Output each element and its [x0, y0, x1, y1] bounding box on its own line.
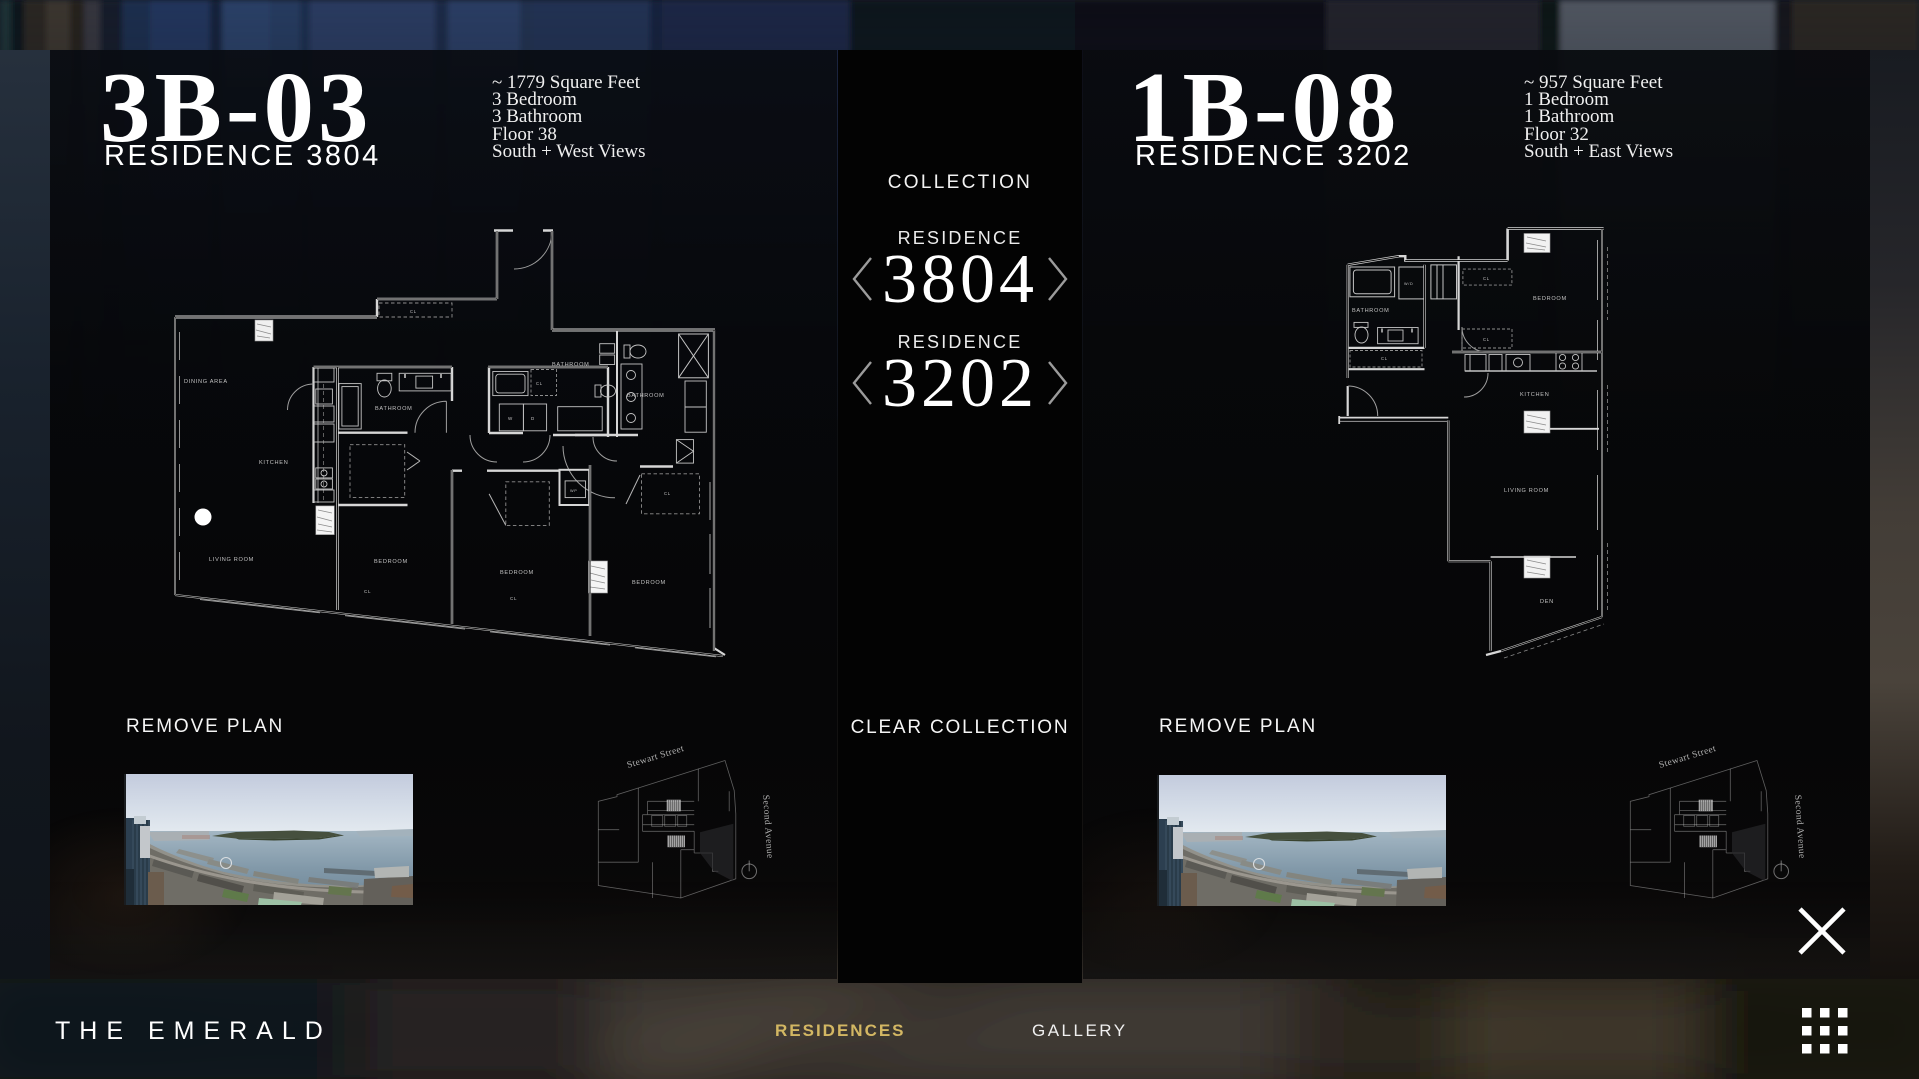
- svg-text:W: W: [508, 416, 513, 421]
- svg-text:CL: CL: [1483, 276, 1490, 281]
- svg-text:D: D: [531, 416, 535, 421]
- svg-text:W/D: W/D: [1404, 282, 1413, 286]
- svg-text:DEN: DEN: [1540, 599, 1554, 605]
- svg-text:BATHROOM: BATHROOM: [552, 362, 590, 368]
- svg-text:BATHROOM: BATHROOM: [1352, 308, 1390, 314]
- svg-text:LIVING ROOM: LIVING ROOM: [1504, 488, 1549, 494]
- svg-text:BATHROOM: BATHROOM: [375, 406, 413, 412]
- svg-text:CL: CL: [1381, 356, 1388, 361]
- svg-text:CL: CL: [510, 596, 517, 601]
- svg-text:BEDROOM: BEDROOM: [500, 570, 534, 576]
- svg-text:BATHROOM: BATHROOM: [627, 393, 665, 399]
- svg-text:CL: CL: [536, 381, 543, 386]
- svg-text:BEDROOM: BEDROOM: [632, 580, 666, 586]
- svg-text:CL: CL: [1483, 337, 1490, 342]
- svg-text:CL: CL: [410, 309, 417, 314]
- svg-text:KITCHEN: KITCHEN: [259, 460, 288, 466]
- svg-text:CL: CL: [664, 491, 671, 496]
- svg-text:WP: WP: [570, 489, 578, 493]
- svg-text:BEDROOM: BEDROOM: [1533, 296, 1567, 302]
- svg-text:DINING AREA: DINING AREA: [184, 379, 228, 385]
- svg-text:KITCHEN: KITCHEN: [1520, 392, 1549, 398]
- svg-text:BEDROOM: BEDROOM: [374, 559, 408, 565]
- svg-text:LIVING ROOM: LIVING ROOM: [209, 557, 254, 563]
- svg-text:CL: CL: [364, 589, 371, 594]
